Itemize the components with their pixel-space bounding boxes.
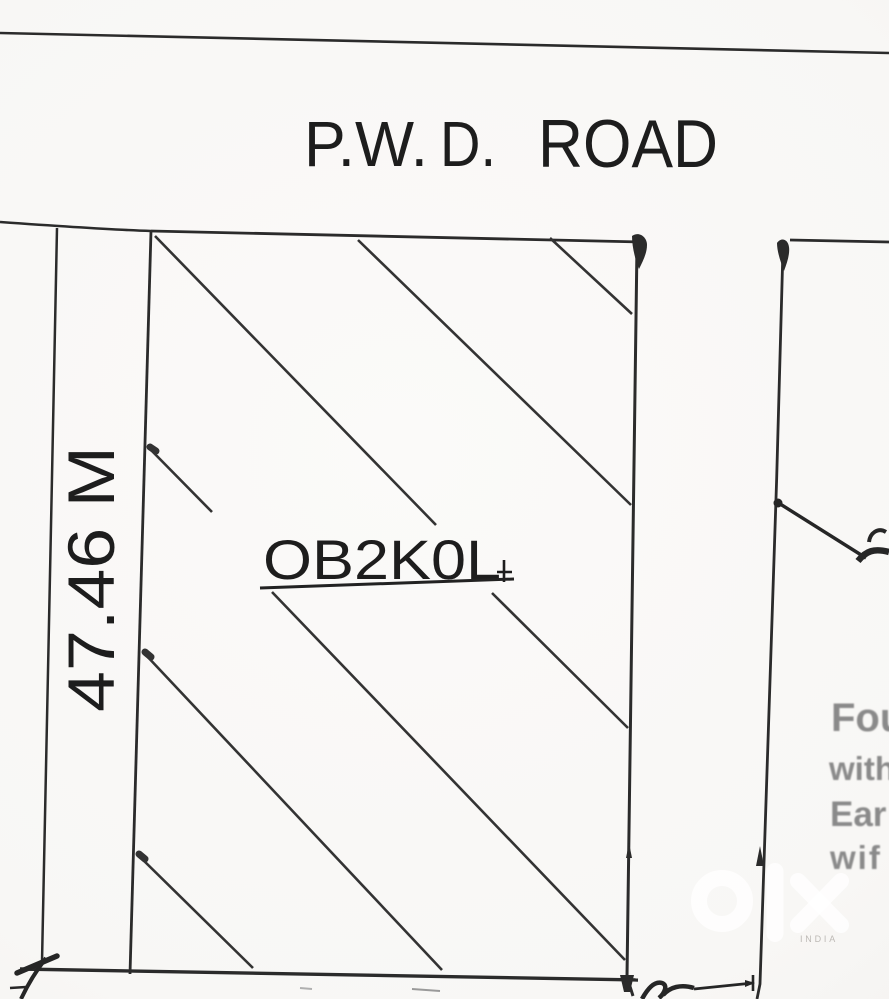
svg-text:wif: wif <box>829 839 882 876</box>
svg-text:Fou: Fou <box>831 696 889 740</box>
svg-text:D.: D. <box>440 108 496 180</box>
svg-text:47.46 M: 47.46 M <box>54 446 128 712</box>
svg-text:Ear: Ear <box>830 795 887 834</box>
svg-text:ROAD: ROAD <box>538 106 718 182</box>
svg-text:with: with <box>828 750 889 787</box>
svg-text:P.W.: P.W. <box>304 108 428 180</box>
svg-text:INDIA: INDIA <box>800 934 838 944</box>
